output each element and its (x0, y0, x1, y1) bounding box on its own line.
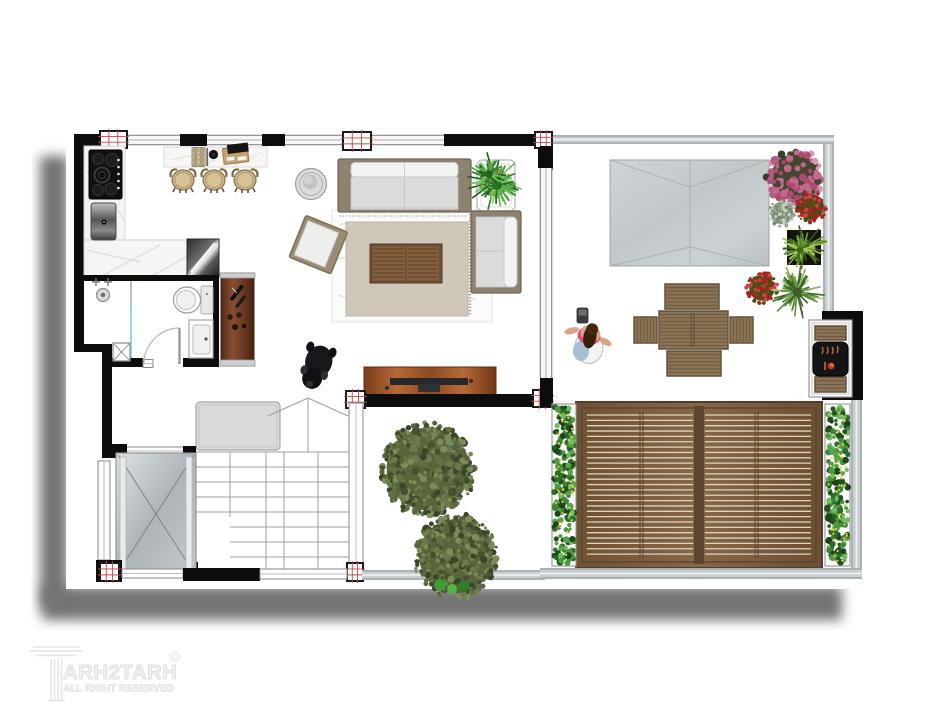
svg-text:ALL RIGHT RESERVED: ALL RIGHT RESERVED (63, 684, 174, 695)
svg-text:ARH2TARH: ARH2TARH (63, 661, 177, 684)
svg-text:R: R (173, 656, 178, 662)
